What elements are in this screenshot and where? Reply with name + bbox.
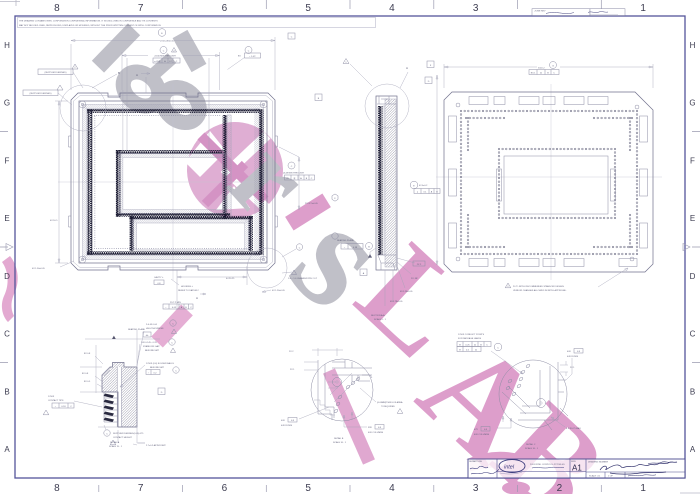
svg-text:G: G xyxy=(689,99,695,108)
svg-text:1: 1 xyxy=(640,3,646,14)
svg-text:6: 6 xyxy=(222,3,228,14)
svg-text:SCALE: 4:1: SCALE: 4:1 xyxy=(589,475,601,478)
svg-text:C: C xyxy=(690,330,696,339)
svg-text:2: 2 xyxy=(557,483,563,494)
svg-text:⊕: ⊕ xyxy=(459,344,461,347)
svg-text:44 20.25: 44 20.25 xyxy=(226,278,235,280)
svg-text:SECTION A-A: SECTION A-A xyxy=(371,314,385,317)
svg-text:DETAIL B: DETAIL B xyxy=(334,437,344,440)
svg-text:SCALE 5 : 1: SCALE 5 : 1 xyxy=(374,318,387,321)
svg-text:STANDOFF GAP: STANDOFF GAP xyxy=(143,345,160,348)
svg-text:-A-: -A- xyxy=(146,334,149,337)
svg-text:16X 0.145 - 0.25: 16X 0.145 - 0.25 xyxy=(141,342,158,344)
svg-text:BEFORE SMT: BEFORE SMT xyxy=(150,367,165,369)
svg-text:⊕: ⊕ xyxy=(459,349,461,352)
svg-text:1700X: 1700X xyxy=(48,396,55,398)
svg-text:MAY NOT BE DISCLOSED, REPRODUC: MAY NOT BE DISCLOSED, REPRODUCED, DISPLA… xyxy=(19,24,161,27)
svg-text:40X: 40X xyxy=(567,351,571,353)
svg-text:SCALE 10 : 1: SCALE 10 : 1 xyxy=(525,447,539,450)
svg-text:7: 7 xyxy=(138,483,144,494)
svg-text:③ REQUIRED: ③ REQUIRED xyxy=(381,405,395,408)
svg-text:⊕0.1: ⊕0.1 xyxy=(531,72,537,75)
svg-text:1700X CONDUCT POINTS: 1700X CONDUCT POINTS xyxy=(458,334,485,336)
svg-text:3: 3 xyxy=(473,3,479,14)
svg-text:69 1.26±0.05: 69 1.26±0.05 xyxy=(400,291,413,293)
svg-text:(3.48 MIN THROUGH: (3.48 MIN THROUGH xyxy=(283,173,304,175)
svg-text:7: 7 xyxy=(138,3,144,14)
svg-text:E: E xyxy=(690,214,695,223)
svg-text:VENDOR CHANGES ALLOWED W/ INTE: VENDOR CHANGES ALLOWED W/ INTEL APPROVAL… xyxy=(513,289,567,292)
svg-text:G: G xyxy=(4,99,10,108)
svg-text:24.66 MIN THROUGH: 24.66 MIN THROUGH xyxy=(154,55,176,57)
svg-text:DETAIL C: DETAIL C xyxy=(526,443,536,446)
svg-text:3: 3 xyxy=(473,483,479,494)
svg-text:A: A xyxy=(196,296,198,300)
svg-text:B: B xyxy=(118,71,120,75)
svg-text:1700X (0.6) SOLDER BALLS: 1700X (0.6) SOLDER BALLS xyxy=(146,362,174,365)
svg-text:8X 0.8: 8X 0.8 xyxy=(84,353,91,355)
svg-text:(SUPPLIER DEFINED): (SUPPLIER DEFINED) xyxy=(44,72,66,74)
svg-text:(SUPPLIER DEFINED): (SUPPLIER DEFINED) xyxy=(29,93,51,95)
svg-text:40X: 40X xyxy=(281,420,285,422)
svg-text:REFER TO DATUM C: REFER TO DATUM C xyxy=(178,289,199,292)
svg-text:42.0±0.2: 42.0±0.2 xyxy=(419,185,428,187)
svg-text:DRAWING NUMBER: DRAWING NUMBER xyxy=(588,461,609,464)
svg-text:intel: intel xyxy=(504,465,515,471)
svg-text:HSG THICKNESS: HSG THICKNESS xyxy=(146,328,164,330)
svg-text:CAVITY ⌖: CAVITY ⌖ xyxy=(154,276,164,279)
svg-text:8X 0.5: 8X 0.5 xyxy=(84,381,91,383)
svg-text:A: A xyxy=(406,66,408,70)
svg-text:69 1.78±0.05: 69 1.78±0.05 xyxy=(390,301,403,303)
svg-text:40X COLUMNS: 40X COLUMNS xyxy=(474,434,490,436)
svg-text:SEATING PLANE: SEATING PLANE xyxy=(337,239,354,242)
svg-text:50±0.2: 50±0.2 xyxy=(538,67,545,69)
svg-text:8X 0.8: 8X 0.8 xyxy=(82,373,89,375)
svg-text:1 OF: 1 OF xyxy=(608,476,613,478)
svg-text:2024 INTEL CORP/COL-P2724F-4D: 2024 INTEL CORP/COL-P2724F-4D xyxy=(530,464,565,466)
svg-text:F: F xyxy=(5,156,10,165)
svg-text:THE DRAWING CONTAINS INTEL COR: THE DRAWING CONTAINS INTEL CORPORATION C… xyxy=(19,20,158,23)
svg-text:D: D xyxy=(690,272,696,281)
svg-text:A: A xyxy=(4,445,10,454)
svg-text:2X 37.5±0.05: 2X 37.5±0.05 xyxy=(305,203,319,205)
svg-text:⌐ 1.6①: ⌐ 1.6① xyxy=(249,55,256,58)
svg-text:1: 1 xyxy=(640,483,646,494)
svg-text:BEFORE SMT: BEFORE SMT xyxy=(145,350,160,352)
svg-text:4X 16.5: 4X 16.5 xyxy=(50,220,58,222)
svg-text:44X ROWS: 44X ROWS xyxy=(567,356,579,358)
svg-text:B: B xyxy=(4,387,9,396)
svg-text:4: 4 xyxy=(389,3,395,14)
svg-text:SUPPLIER DEFINED(0.05).075: SUPPLIER DEFINED(0.05).075 xyxy=(113,433,144,435)
svg-text:4 X R0.75 MAX: 4 X R0.75 MAX xyxy=(566,427,581,430)
svg-text:4X 1.26±0.05: 4X 1.26±0.05 xyxy=(272,290,286,292)
svg-text:B: B xyxy=(690,387,695,396)
svg-text:ZONE REV: ZONE REV xyxy=(535,11,547,13)
svg-text:E: E xyxy=(4,214,9,223)
svg-text:SCALE 10 : 1: SCALE 10 : 1 xyxy=(333,441,347,444)
svg-text:4: 4 xyxy=(389,483,395,494)
svg-text:(0.08MM)² MIN LOF AREA: (0.08MM)² MIN LOF AREA xyxy=(377,401,403,404)
svg-text:39X: 39X xyxy=(368,427,372,429)
svg-text:A: A xyxy=(690,445,696,454)
svg-text:H: H xyxy=(4,41,10,50)
svg-text:4X 1.56±0.05: 4X 1.56±0.05 xyxy=(32,268,46,270)
svg-text:A1: A1 xyxy=(572,464,582,473)
svg-text:DETAIL A: DETAIL A xyxy=(110,441,120,444)
svg-text:C: C xyxy=(4,330,10,339)
svg-text:29.7 P MIN: 29.7 P MIN xyxy=(170,302,181,304)
svg-text:44X ROWS: 44X ROWS xyxy=(281,425,293,427)
svg-text:D: D xyxy=(4,272,10,281)
svg-text:8: 8 xyxy=(54,3,60,14)
svg-text:SEATING PLANE: SEATING PLANE xyxy=(128,328,145,331)
svg-text:5: 5 xyxy=(305,3,311,14)
svg-text:CONTACT HEIGHT: CONTACT HEIGHT xyxy=(113,436,133,439)
svg-text:23 45.08±0.55: 23 45.08±0.55 xyxy=(160,41,174,43)
svg-text:2.7±0.2 AFTER SMT: 2.7±0.2 AFTER SMT xyxy=(146,444,166,447)
svg-text:FOR PACKAGE LANDS: FOR PACKAGE LANDS xyxy=(458,337,482,340)
svg-text:8: 8 xyxy=(54,483,60,494)
svg-text:2-0.65 0.04: 2-0.65 0.04 xyxy=(146,324,158,326)
svg-text:47X: 47X xyxy=(474,429,478,431)
svg-text:20 ②: INTEL RECOMMENDED STANDO: 20 ②: INTEL RECOMMENDED STANDOFF DESIGN. xyxy=(513,285,565,288)
svg-text:2X .38°: 2X .38° xyxy=(411,278,418,280)
svg-text:40X COLUMNS: 40X COLUMNS xyxy=(368,432,384,434)
svg-text:A: A xyxy=(136,73,138,77)
svg-text:HOUSING ⌖: HOUSING ⌖ xyxy=(181,285,194,288)
svg-text:DEPARTURE: DEPARTURE xyxy=(469,460,483,463)
svg-text:CONTACT TIPS: CONTACT TIPS xyxy=(48,399,64,402)
svg-text:H: H xyxy=(690,41,696,50)
svg-text:5: 5 xyxy=(305,483,311,494)
svg-text:6: 6 xyxy=(222,483,228,494)
svg-text:1.6 ⌐ 1.6 CHAMFER PIN #1 ⑥: 1.6 ⌐ 1.6 CHAMFER PIN #1 ⑥ xyxy=(288,277,317,280)
svg-text:SCALE 70 : 1: SCALE 70 : 1 xyxy=(109,445,123,448)
svg-text:F: F xyxy=(690,156,695,165)
